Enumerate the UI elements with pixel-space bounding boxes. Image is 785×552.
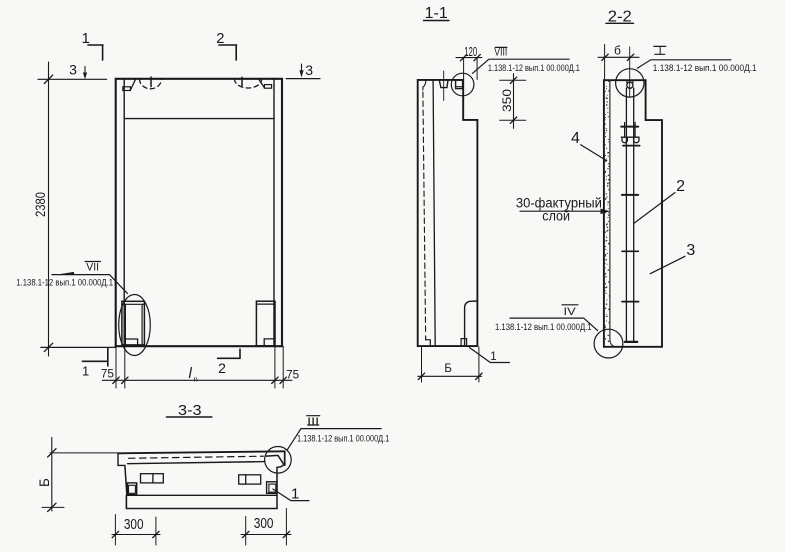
svg-text:3: 3	[686, 242, 695, 259]
svg-text:VIII: VIII	[494, 47, 507, 59]
svg-text:4: 4	[571, 130, 580, 147]
svg-text:1: 1	[291, 486, 299, 503]
svg-text:2-2: 2-2	[608, 9, 632, 26]
svg-text:1.138.1-12 вып.1 00.000Д.1: 1.138.1-12 вып.1 00.000Д.1	[297, 434, 389, 445]
svg-text:I: I	[659, 45, 662, 57]
svg-text:1: 1	[82, 363, 89, 378]
svg-text:1.138.1-12 вып.1 00.000Д.1: 1.138.1-12 вып.1 00.000Д.1	[16, 277, 113, 288]
svg-text:75: 75	[101, 368, 114, 380]
svg-text:1: 1	[490, 351, 496, 363]
svg-text:n: n	[194, 375, 198, 384]
svg-text:2380: 2380	[33, 192, 48, 217]
svg-text:III: III	[307, 415, 319, 427]
svg-text:VII: VII	[86, 261, 99, 273]
svg-text:3: 3	[305, 62, 313, 78]
svg-text:300: 300	[124, 517, 144, 533]
svg-text:2: 2	[216, 30, 224, 47]
svg-text:350: 350	[502, 89, 514, 112]
svg-text:IV: IV	[564, 306, 577, 318]
svg-text:2: 2	[676, 178, 685, 195]
svg-text:1.138.1-12 вып.1 00.000Д.1: 1.138.1-12 вып.1 00.000Д.1	[495, 322, 592, 333]
svg-text:Б: Б	[37, 478, 52, 487]
svg-text:3: 3	[69, 62, 77, 78]
svg-text:2: 2	[218, 360, 226, 376]
svg-text:120: 120	[464, 45, 477, 59]
svg-text:1: 1	[82, 30, 90, 47]
svg-text:300: 300	[254, 516, 274, 532]
svg-text:Б: Б	[444, 363, 452, 375]
svg-text:слой: слой	[542, 209, 570, 224]
svg-text:3-3: 3-3	[178, 402, 202, 419]
svg-text:1.138.1-12 вып.1 00.000Д.1: 1.138.1-12 вып.1 00.000Д.1	[488, 63, 580, 74]
svg-text:l: l	[189, 365, 193, 382]
svg-text:б: б	[614, 43, 621, 57]
svg-text:75: 75	[286, 369, 299, 381]
svg-text:1-1: 1-1	[425, 5, 448, 22]
svg-text:1.138.1-12 вып.1 00.000Д.1: 1.138.1-12 вып.1 00.000Д.1	[653, 63, 757, 74]
